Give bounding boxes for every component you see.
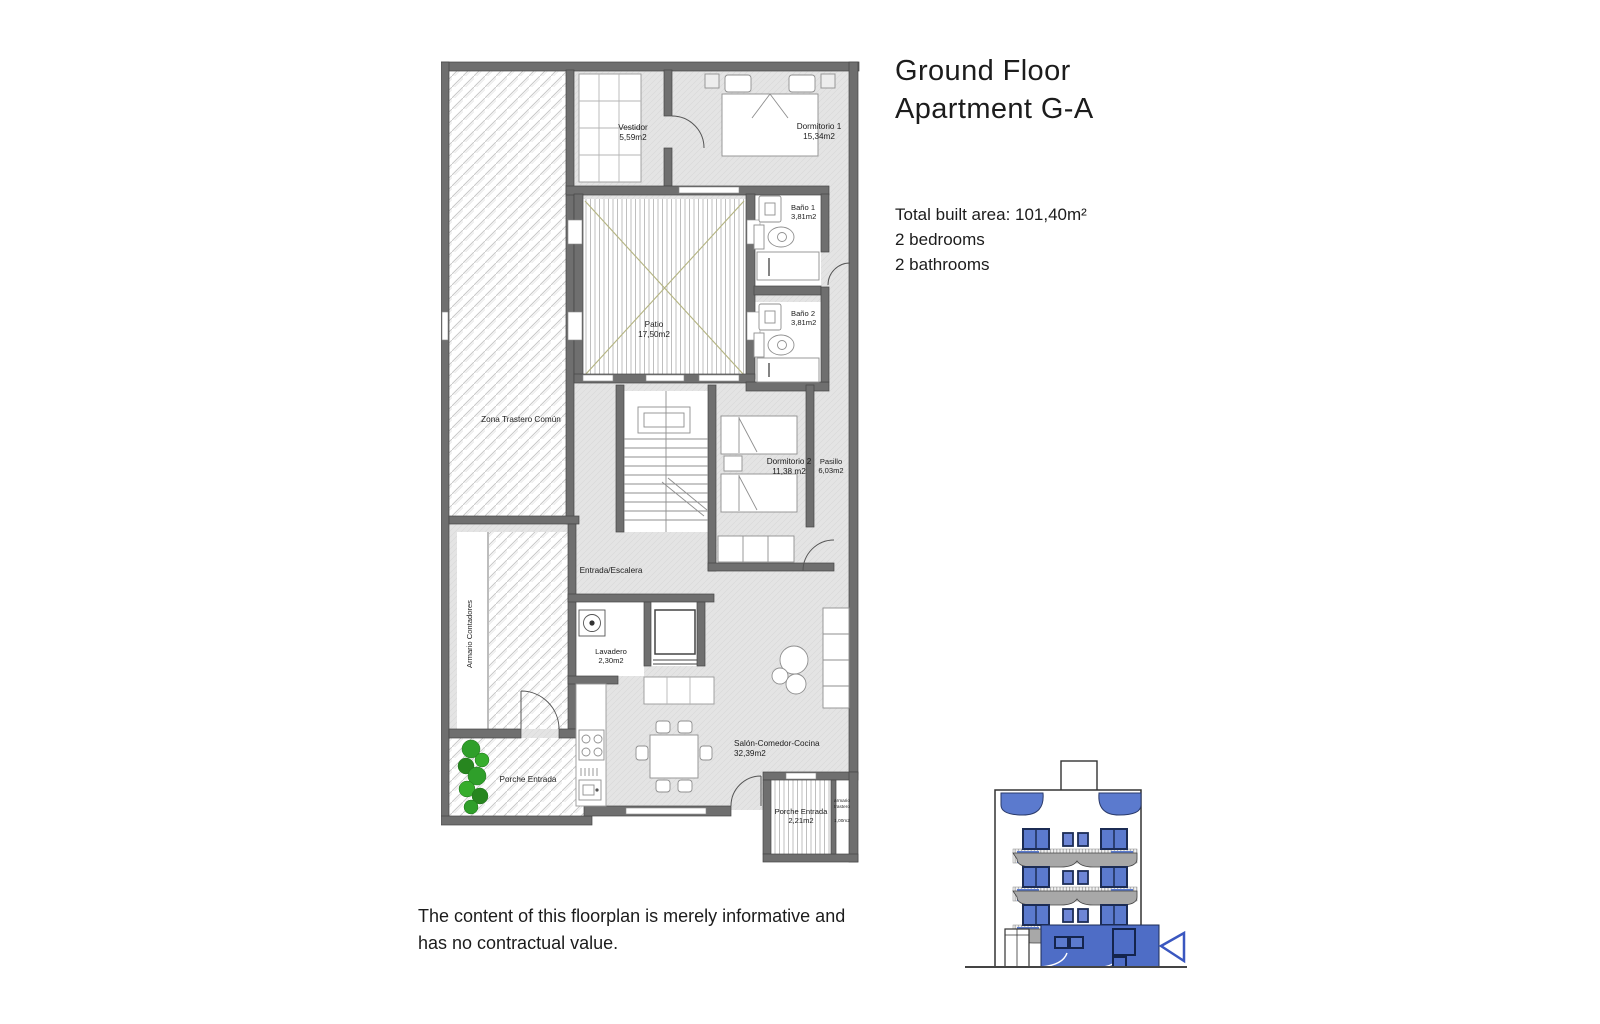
label-lavadero-area: 2,30m2: [598, 656, 623, 665]
ground-floor-highlight: [1005, 925, 1159, 967]
shower-icon: [757, 358, 819, 382]
label-pasillo: Pasillo: [820, 457, 842, 466]
label-vestidor-area: 5,59m2: [619, 133, 647, 142]
plan-summary: Total built area: 101,40m² 2 bedrooms 2 …: [895, 202, 1087, 277]
disclaimer-line1: The content of this floorplan is merely …: [418, 903, 845, 930]
bedrooms-count: 2 bedrooms: [895, 227, 1087, 252]
kitchen-sink-icon: [579, 780, 601, 800]
label-salon: Salón-Comedor-Cocina: [734, 739, 820, 748]
disclaimer: The content of this floorplan is merely …: [418, 903, 845, 957]
floorplan-page: Vestidor 5,59m2 Dormitorio 1 15,34m2 Bañ…: [0, 0, 1600, 1024]
label-entrada: Entrada/Escalera: [580, 566, 643, 575]
label-porche2: Porche Entrada: [775, 807, 829, 816]
label-porche2-area: 2,21m2: [788, 816, 813, 825]
label-vestidor: Vestidor: [618, 123, 648, 132]
plan-title-line2: Apartment G-A: [895, 90, 1094, 128]
label-zona-trastero: Zona Trastero Común: [481, 415, 561, 424]
floorplan-drawing: Vestidor 5,59m2 Dormitorio 1 15,34m2 Bañ…: [441, 54, 866, 864]
washing-machine-icon: [579, 610, 605, 636]
roof-box: [1061, 761, 1097, 792]
label-dormitorio1-area: 15,34m2: [803, 132, 835, 141]
label-patio: Patio: [645, 320, 664, 329]
label-armario-trastero-area: 1,00m2: [834, 818, 850, 823]
label-dormitorio2: Dormitorio 2: [767, 457, 812, 466]
sofa-icon: [823, 608, 849, 708]
nightstand-icon: [724, 456, 742, 471]
label-lavadero: Lavadero: [595, 647, 627, 656]
label-bano2: Baño 2: [791, 309, 815, 318]
plan-title-line1: Ground Floor: [895, 52, 1094, 90]
vestibule-floor: [489, 532, 568, 729]
label-bano1-area: 3,81m2: [791, 212, 816, 221]
sink-icon: [759, 196, 781, 222]
shower-icon: [757, 252, 819, 280]
label-armario-trastero-2: trastero: [834, 804, 850, 809]
disclaimer-line2: has no contractual value.: [418, 930, 845, 957]
label-pasillo-area: 6,03m2: [818, 466, 843, 475]
zona-trastero-floor: [449, 70, 566, 516]
building-elevation: [963, 737, 1191, 975]
bed-single-icon: [721, 474, 797, 512]
bathrooms-count: 2 bathrooms: [895, 252, 1087, 277]
label-patio-area: 17,50m2: [638, 330, 670, 339]
label-dormitorio2-area: 11,38 m2: [772, 467, 806, 476]
elevation-building: [965, 761, 1187, 967]
label-porche1: Porche Entrada: [500, 775, 557, 784]
label-salon-area: 32,39m2: [734, 749, 766, 758]
toilet-icon: [754, 225, 794, 249]
wardrobe-icon: [718, 536, 794, 562]
armario-trastero-floor: [836, 780, 849, 854]
label-armario-contadores: Armario Contadores: [465, 600, 474, 668]
label-armario-trastero-1: armario: [834, 798, 850, 803]
toilet-icon: [754, 333, 794, 357]
label-dormitorio1: Dormitorio 1: [797, 122, 842, 131]
total-built-area: Total built area: 101,40m²: [895, 202, 1087, 227]
label-bano2-area: 3,81m2: [791, 318, 816, 327]
plan-title: Ground Floor Apartment G-A: [895, 52, 1094, 128]
camera-view-icon: [1161, 933, 1184, 961]
sink-icon: [759, 304, 781, 330]
bed-single-icon: [721, 416, 797, 454]
label-bano1: Baño 1: [791, 203, 815, 212]
